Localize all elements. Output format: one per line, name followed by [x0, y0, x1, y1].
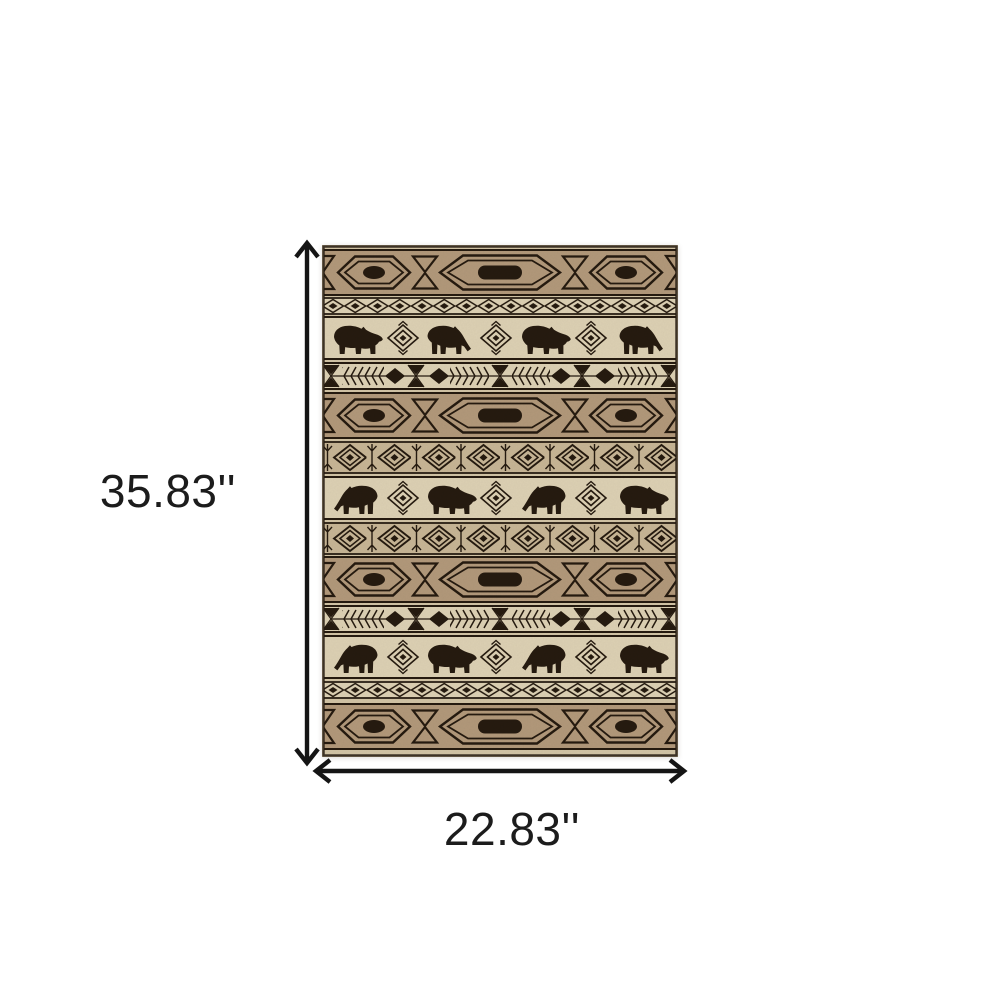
width-dimension-label: 22.83'' [406, 806, 618, 852]
height-dimension-label: 35.83'' [62, 468, 274, 514]
product-dimension-image: 35.83'' 22.83'' [0, 0, 1000, 1000]
height-dimension-arrow [292, 236, 322, 770]
width-dimension-arrow [308, 756, 692, 786]
rug-image [322, 245, 678, 757]
